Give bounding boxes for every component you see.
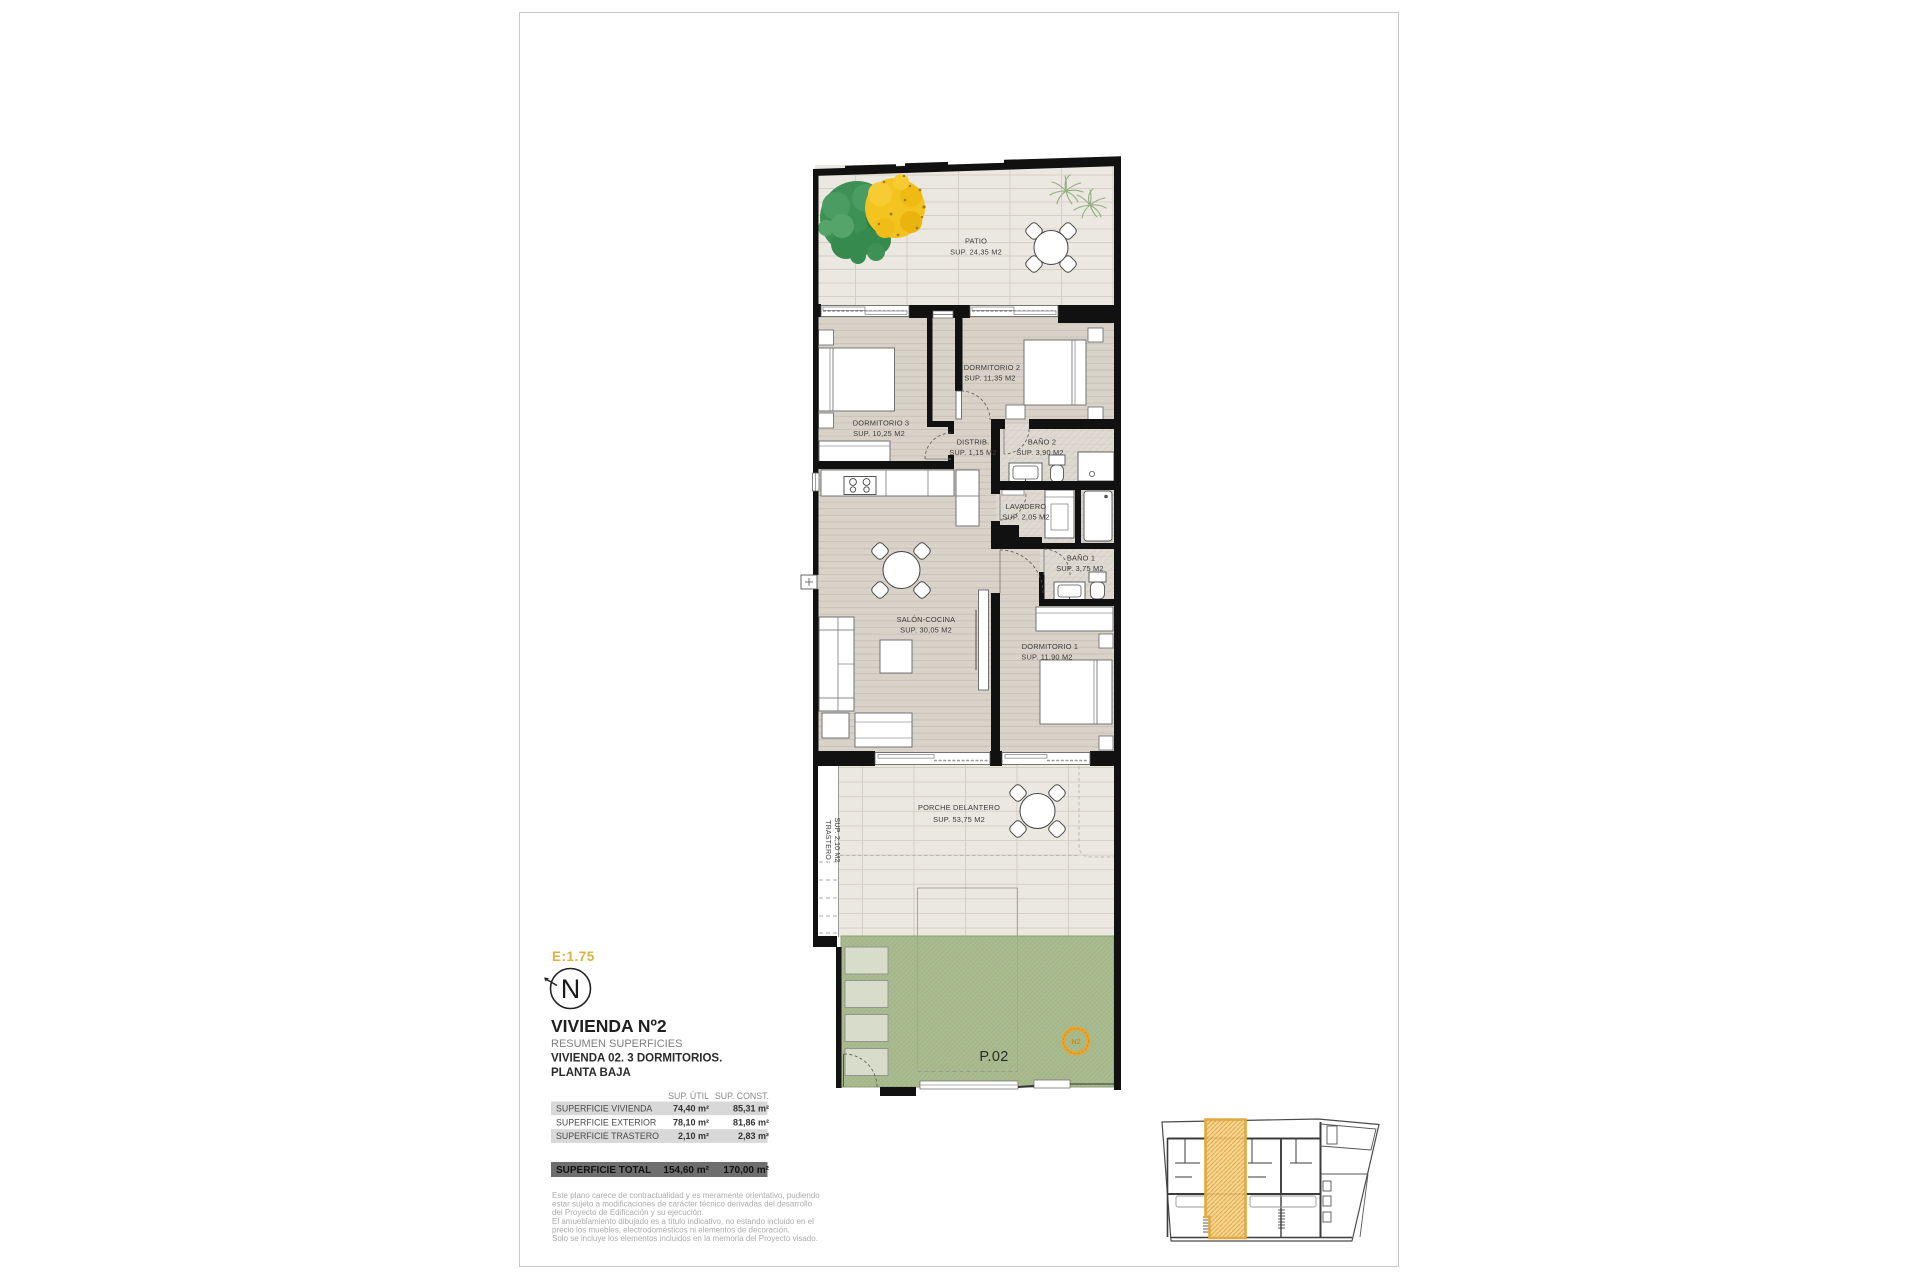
svg-text:SUP. CONST.: SUP. CONST.: [715, 1091, 769, 1101]
svg-text:SUPERFICIE VIVIENDA: SUPERFICIE VIVIENDA: [556, 1104, 652, 1114]
svg-text:78,10 m²: 78,10 m²: [673, 1117, 709, 1127]
svg-text:SUP. ÚTIL: SUP. ÚTIL: [668, 1091, 709, 1101]
svg-text:2,83 m²: 2,83 m²: [738, 1131, 769, 1141]
svg-text:170,00 m²: 170,00 m²: [723, 1165, 769, 1176]
svg-text:E:1.75: E:1.75: [552, 949, 595, 964]
svg-text:SUP. 11,90 M2: SUP. 11,90 M2: [1021, 653, 1072, 662]
svg-text:74,40 m²: 74,40 m²: [673, 1104, 709, 1114]
svg-text:PLANTA BAJA: PLANTA BAJA: [551, 1067, 631, 1079]
svg-text:154,60 m²: 154,60 m²: [663, 1165, 709, 1176]
svg-text:SUPERFICIE TOTAL: SUPERFICIE TOTAL: [556, 1165, 651, 1176]
svg-text:N2: N2: [1072, 1039, 1081, 1046]
svg-text:SALÓN-COCINA: SALÓN-COCINA: [897, 615, 956, 624]
svg-text:PATIO: PATIO: [965, 237, 987, 246]
svg-text:VIVIENDA 02. 3 DORMITORIOS.: VIVIENDA 02. 3 DORMITORIOS.: [551, 1053, 722, 1065]
svg-text:BAÑO 1: BAÑO 1: [1067, 554, 1095, 563]
svg-text:SUP. 10,25 M2: SUP. 10,25 M2: [853, 429, 905, 438]
svg-text:PORCHE DELANTERO: PORCHE DELANTERO: [918, 803, 1000, 812]
svg-text:DORMITORIO 2: DORMITORIO 2: [964, 363, 1020, 372]
svg-text:DISTRIB.: DISTRIB.: [957, 438, 990, 447]
svg-text:VIVIENDA Nº2: VIVIENDA Nº2: [551, 1016, 667, 1036]
svg-text:DORMITORIO 1: DORMITORIO 1: [1022, 642, 1078, 651]
svg-text:LAVADERO: LAVADERO: [1006, 502, 1047, 511]
svg-text:SUP. 30,05 M2: SUP. 30,05 M2: [900, 626, 952, 635]
svg-text:N: N: [561, 974, 581, 1004]
svg-text:SUP. 24,35 M2: SUP. 24,35 M2: [950, 248, 1002, 257]
svg-text:SUPERFICIE EXTERIOR: SUPERFICIE EXTERIOR: [556, 1117, 656, 1127]
svg-text:SUP. 11,35 M2: SUP. 11,35 M2: [964, 374, 1015, 383]
svg-text:SUP. 2,10 M2: SUP. 2,10 M2: [833, 817, 840, 862]
svg-text:2,10 m²: 2,10 m²: [678, 1131, 709, 1141]
svg-text:Solo se incluye los elementos: Solo se incluye los elementos incluidos …: [552, 1234, 818, 1243]
svg-text:SUP. 3,75 M2: SUP. 3,75 M2: [1056, 564, 1103, 573]
svg-text:BAÑO 2: BAÑO 2: [1028, 438, 1056, 447]
svg-text:SUP. 1,15 M2: SUP. 1,15 M2: [949, 448, 996, 457]
svg-text:RESUMEN SUPERFICIES: RESUMEN SUPERFICIES: [551, 1038, 682, 1050]
svg-text:SUP. 3,90 M2: SUP. 3,90 M2: [1016, 448, 1063, 457]
svg-text:SUP. 2,05 M2: SUP. 2,05 M2: [1002, 513, 1049, 522]
svg-text:85,31 m²: 85,31 m²: [733, 1104, 769, 1114]
svg-text:SUPERFICIE TRASTERO: SUPERFICIE TRASTERO: [556, 1131, 659, 1141]
svg-text:SUP. 53,75 M2: SUP. 53,75 M2: [933, 815, 985, 824]
svg-text:81,86 m²: 81,86 m²: [733, 1117, 769, 1127]
svg-text:TRASTERO: TRASTERO: [824, 820, 831, 860]
svg-text:DORMITORIO 3: DORMITORIO 3: [853, 419, 909, 428]
svg-text:P.02: P.02: [979, 1049, 1008, 1065]
